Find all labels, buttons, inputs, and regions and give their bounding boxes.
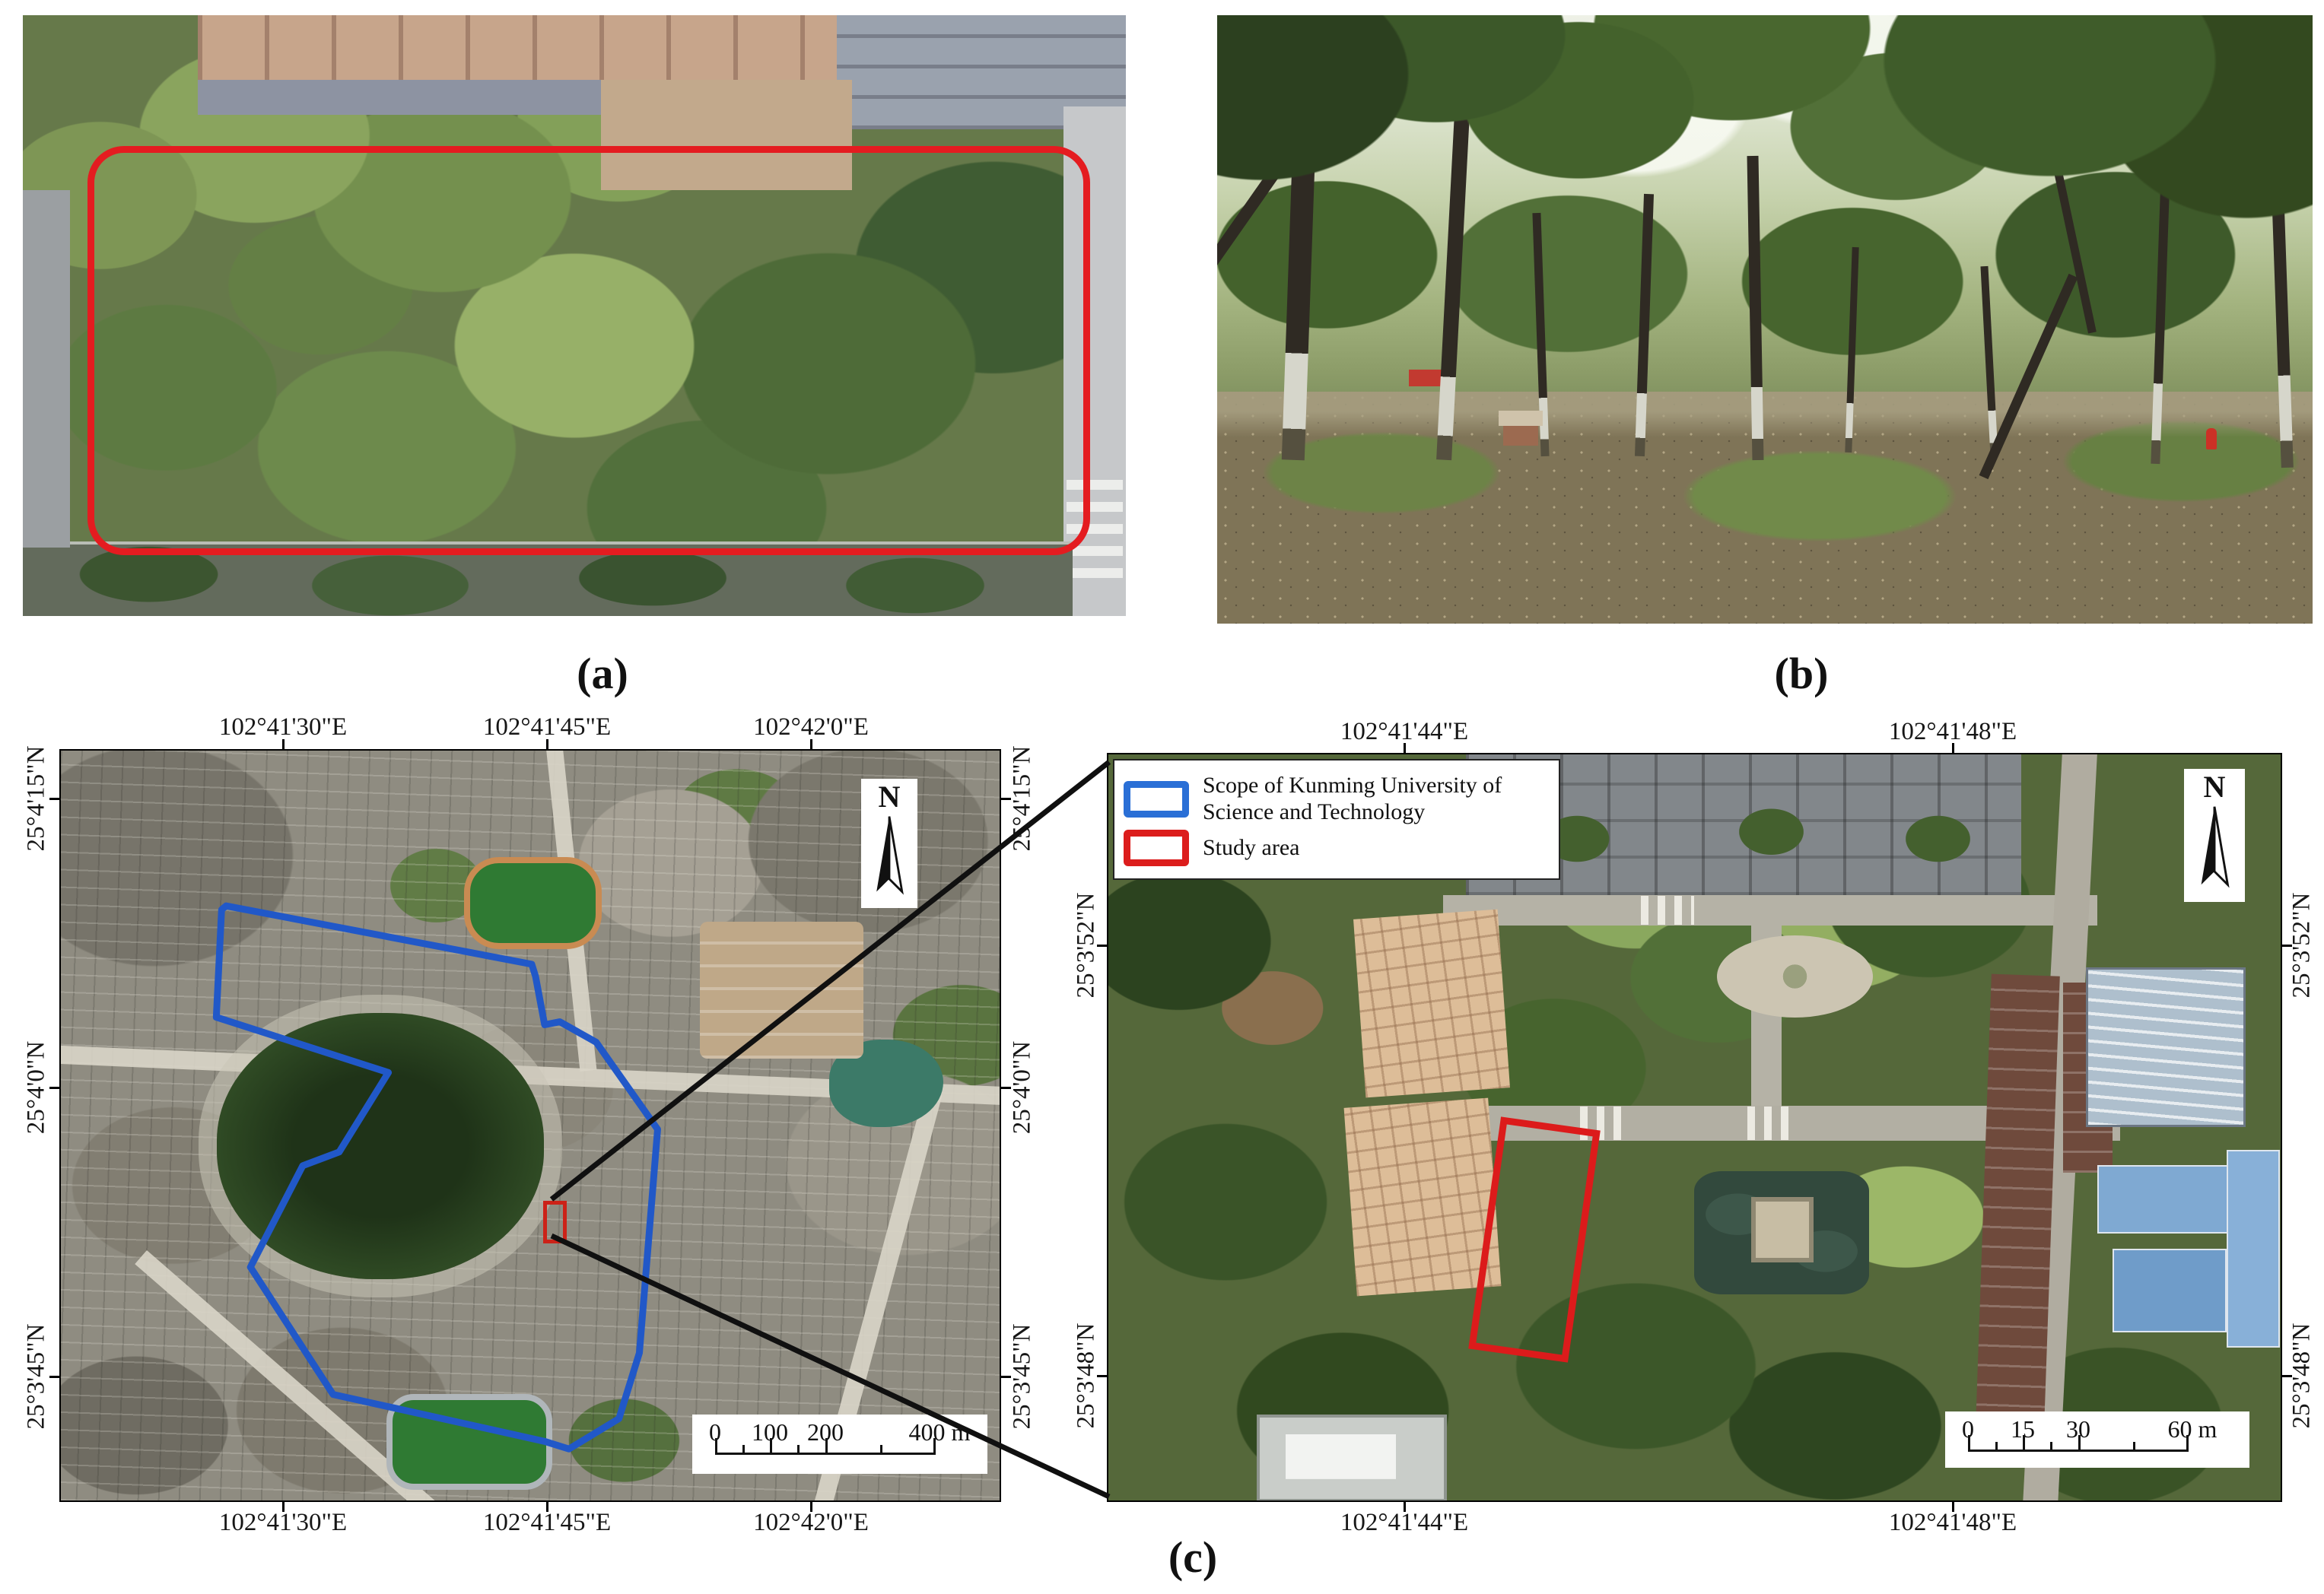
lon-label: 102°41'48"E <box>1889 718 2017 746</box>
figure-study-area: (a) (b) <box>0 0 2324 1594</box>
crosswalk <box>1747 1107 1796 1140</box>
fire-hydrant <box>2206 428 2217 449</box>
lat-label: 25°3'52"N <box>2288 893 2316 999</box>
tiled-roof-building <box>1353 910 1510 1098</box>
tick <box>49 1376 59 1378</box>
tick <box>2282 1375 2292 1377</box>
tick <box>2282 945 2292 947</box>
tick <box>282 739 285 749</box>
lon-label: 102°41'45"E <box>483 1509 611 1537</box>
study-label: Study area <box>1203 835 1299 862</box>
warehouse <box>2086 967 2246 1127</box>
lat-label: 25°3'52"N <box>1073 893 1101 999</box>
south-building <box>1257 1415 1447 1502</box>
panel-a-aerial-photo <box>23 15 1126 616</box>
tick <box>1952 743 1954 753</box>
north-arrow-icon <box>2192 802 2237 891</box>
campus-road <box>1443 895 2097 926</box>
leaf-covered-ground <box>1217 392 2313 624</box>
scale-bar: 0 100 200 400 m <box>692 1415 987 1474</box>
crosswalk <box>1641 896 1694 925</box>
tick <box>1952 1502 1954 1512</box>
lat-label: 25°4'0"N <box>23 1041 51 1134</box>
blue-roof-building <box>2227 1150 2280 1348</box>
north-label: N <box>2204 772 2226 802</box>
lon-label: 102°41'44"E <box>1340 1509 1468 1537</box>
lon-label: 102°41'30"E <box>219 1509 347 1537</box>
construction-site <box>700 922 863 1059</box>
tick <box>1001 1087 1011 1089</box>
tick <box>49 798 59 800</box>
tick <box>1001 1376 1011 1378</box>
tick <box>49 1087 59 1089</box>
tick <box>1404 1502 1406 1512</box>
lat-label: 25°3'45"N <box>23 1324 51 1430</box>
tiled-roof-building <box>1344 1098 1502 1297</box>
lon-label: 102°41'44"E <box>1340 718 1468 746</box>
scope-swatch <box>1124 781 1189 818</box>
blue-roof-building <box>2097 1165 2234 1234</box>
lat-label: 25°3'48"N <box>1073 1323 1101 1429</box>
plaza <box>1717 935 1873 1018</box>
panel-b-label: (b) <box>1775 648 1829 699</box>
lat-label: 25°4'15"N <box>1009 746 1037 852</box>
detail-map: Scope of Kunming University of Science a… <box>1107 753 2282 1502</box>
legend-item-study: Study area <box>1124 830 1550 866</box>
tick <box>1001 798 1011 800</box>
tick <box>546 1502 548 1512</box>
north-arrow: N <box>861 779 917 908</box>
legend-item-scope: Scope of Kunming University of Science a… <box>1124 773 1550 825</box>
hill-park <box>217 1013 544 1279</box>
scale-bar: 0 15 30 60 m <box>1945 1411 2249 1468</box>
side-road <box>23 190 70 548</box>
tick <box>1097 1375 1107 1377</box>
north-label: N <box>879 782 901 812</box>
sports-field <box>386 1394 552 1490</box>
study-area-locator <box>543 1201 567 1243</box>
stadium <box>464 857 602 949</box>
bench-brick-base <box>1503 426 1538 446</box>
legend: Scope of Kunming University of Science a… <box>1113 759 1560 880</box>
north-arrow-icon <box>868 812 911 897</box>
scope-label: Scope of Kunming University of Science a… <box>1203 773 1550 825</box>
tick <box>810 1502 812 1512</box>
study-swatch <box>1124 830 1189 866</box>
tick <box>1097 945 1107 947</box>
building-roof <box>198 15 837 80</box>
lat-label: 25°3'48"N <box>2288 1323 2316 1429</box>
lon-label: 102°41'30"E <box>219 713 347 741</box>
panel-c-label: (c) <box>1168 1532 1217 1583</box>
tick <box>546 739 548 749</box>
foreground-canopy <box>1217 15 2313 342</box>
tick <box>1404 743 1406 753</box>
tick <box>810 739 812 749</box>
blue-roof-building <box>2113 1249 2227 1332</box>
panel-b-ground-photo <box>1217 15 2313 624</box>
lon-label: 102°42'0"E <box>753 1509 869 1537</box>
pavilion <box>1751 1197 1814 1262</box>
tick <box>282 1502 285 1512</box>
panel-a-label: (a) <box>577 648 628 699</box>
lat-label: 25°3'45"N <box>1009 1324 1037 1430</box>
lat-label: 25°4'0"N <box>1009 1041 1037 1134</box>
stone-bench <box>1499 411 1543 426</box>
lon-label: 102°41'48"E <box>1889 1509 2017 1537</box>
study-area-outline <box>87 146 1090 555</box>
lon-label: 102°42'0"E <box>753 713 869 741</box>
lon-label: 102°41'45"E <box>483 713 611 741</box>
north-arrow: N <box>2184 769 2245 902</box>
lat-label: 25°4'15"N <box>23 746 51 852</box>
overview-map: N 0 100 200 400 m <box>59 749 1001 1502</box>
